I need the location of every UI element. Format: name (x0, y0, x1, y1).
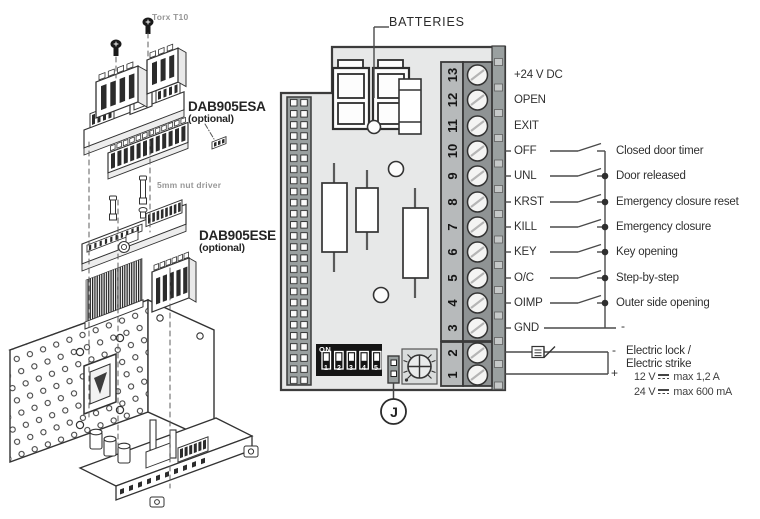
terminal-number-1: 1 (440, 364, 464, 386)
gnd-minus-sign: - (621, 319, 625, 333)
terminal-number-8: 8 (440, 191, 464, 213)
control-board-drawing (281, 27, 505, 424)
terminal-number-7: 7 (440, 216, 464, 238)
function-step-by-step: Step-by-step (616, 271, 679, 285)
lock-name-line1: Electric lock / (626, 345, 691, 358)
nut-driver-tools-drawing (110, 176, 148, 220)
terminal-number-5: 5 (440, 267, 464, 289)
terminal-number-11: 11 (440, 115, 464, 137)
terminal-number-4: 4 (440, 292, 464, 314)
installation-diagram-page: BATTERIES Torx T10 5mm nut driver DAB905… (0, 0, 760, 519)
base-tray-drawing (80, 418, 258, 507)
module-esa-name: DAB905ESA (188, 99, 266, 114)
trimmer-potentiometer (402, 349, 437, 384)
terminal-number-9: 9 (440, 165, 464, 187)
terminal-number-13: 13 (440, 64, 464, 86)
dc-current-icon (658, 373, 670, 381)
exploded-view-drawing (10, 18, 258, 508)
function-key-opening: Key opening (616, 245, 678, 259)
function-emergency-closure-reset: Emergency closure reset (616, 195, 739, 209)
lock-spec-12v: 12 V max 1,2 A (634, 371, 720, 383)
electric-lock-wires (505, 352, 608, 374)
dip-position-4: 4 (359, 365, 369, 372)
terminal-number-10: 10 (440, 140, 464, 162)
terminal-label-gnd: GND (514, 321, 539, 335)
spec-24v-voltage: 24 V (634, 386, 655, 398)
dip-position-2: 2 (334, 365, 344, 372)
dip-position-5: 5 (371, 365, 381, 372)
spec-24v-rating: max 600 mA (673, 386, 732, 398)
terminal-number-6: 6 (440, 241, 464, 263)
terminal-label-kill: KILL (514, 220, 537, 234)
terminal-label-off: OFF (514, 144, 536, 158)
torx-tool-label: Torx T10 (152, 12, 188, 22)
dc-current-icon (658, 388, 670, 396)
function-door-released: Door released (616, 169, 686, 183)
function-outer-side-opening: Outer side opening (616, 296, 710, 310)
module-ese-note: (optional) (199, 242, 245, 254)
lock-negative-sign: - (612, 343, 616, 357)
terminal-label-key: KEY (514, 245, 536, 259)
dip-on-label: ON (319, 345, 331, 354)
function-emergency-closure: Emergency closure (616, 220, 711, 234)
fuse-holder (399, 79, 421, 134)
torx-screw-icon (111, 18, 154, 57)
function-closed-door-timer: Closed door timer (616, 144, 703, 158)
spec-12v-voltage: 12 V (634, 371, 655, 383)
dip-position-1: 1 (321, 365, 331, 372)
terminal-label-unl: UNL (514, 169, 536, 183)
diagram-line-art (0, 0, 760, 519)
terminal-label-exit: EXIT (514, 119, 539, 133)
terminal-number-12: 12 (440, 89, 464, 111)
lock-positive-sign: + (611, 366, 618, 380)
terminal-number-3: 3 (440, 317, 464, 339)
board-edge-strip (492, 46, 505, 390)
lock-name-line2: Electric strike (626, 358, 691, 371)
terminal-number-2: 2 (440, 342, 464, 364)
spec-12v-rating: max 1,2 A (673, 371, 719, 383)
module-ese-name: DAB905ESE (199, 228, 276, 243)
dip-position-3: 3 (346, 365, 356, 372)
terminal-label-24vdc: +24 V DC (514, 68, 563, 82)
terminal-label-oimp: OIMP (514, 296, 543, 310)
terminal-label-oc: O/C (514, 271, 534, 285)
lock-spec-24v: 24 V max 600 mA (634, 386, 732, 398)
switch-symbols (550, 144, 605, 304)
jumper-j-label: J (386, 404, 402, 420)
jumper-piece-drawing (205, 124, 226, 149)
batteries-label: BATTERIES (389, 15, 465, 29)
module-esa-note: (optional) (188, 113, 234, 125)
terminal-label-krst: KRST (514, 195, 544, 209)
nut-driver-tool-label: 5mm nut driver (157, 180, 221, 190)
plug-connector-drawing (152, 252, 196, 312)
terminal-label-open: OPEN (514, 93, 546, 107)
